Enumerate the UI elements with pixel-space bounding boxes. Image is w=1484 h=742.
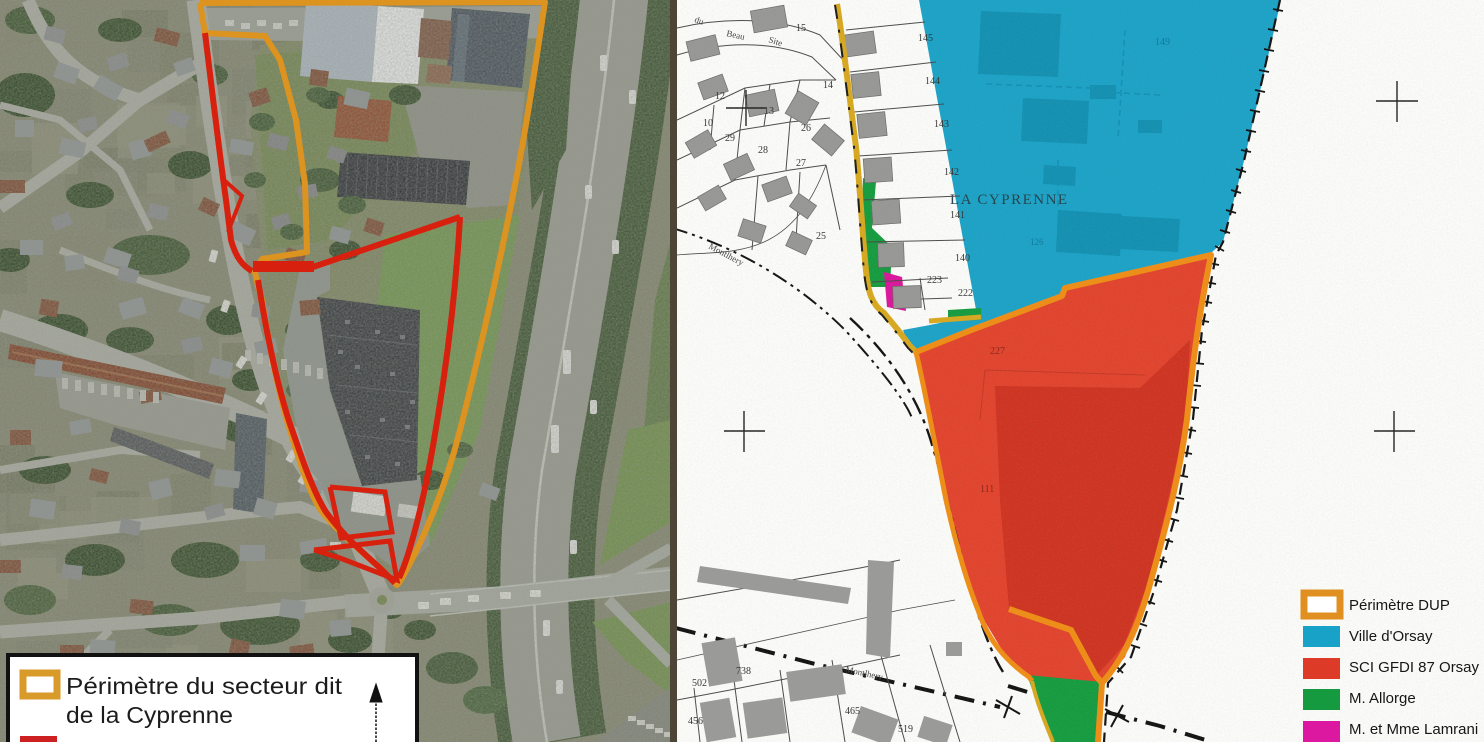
svg-text:Périmètre DUP: Périmètre DUP (1349, 597, 1450, 614)
svg-text:SCI GFDI 87 Orsay: SCI GFDI 87 Orsay (1349, 659, 1480, 676)
svg-text:M. Allorge: M. Allorge (1349, 690, 1416, 707)
svg-text:M. et Mme Lamrani: M. et Mme Lamrani (1349, 721, 1478, 738)
svg-text:de la Cyprenne: de la Cyprenne (66, 702, 233, 728)
svg-text:Ville d'Orsay: Ville d'Orsay (1349, 628, 1433, 645)
svg-text:Périmètre du secteur dit: Périmètre du secteur dit (66, 673, 343, 699)
